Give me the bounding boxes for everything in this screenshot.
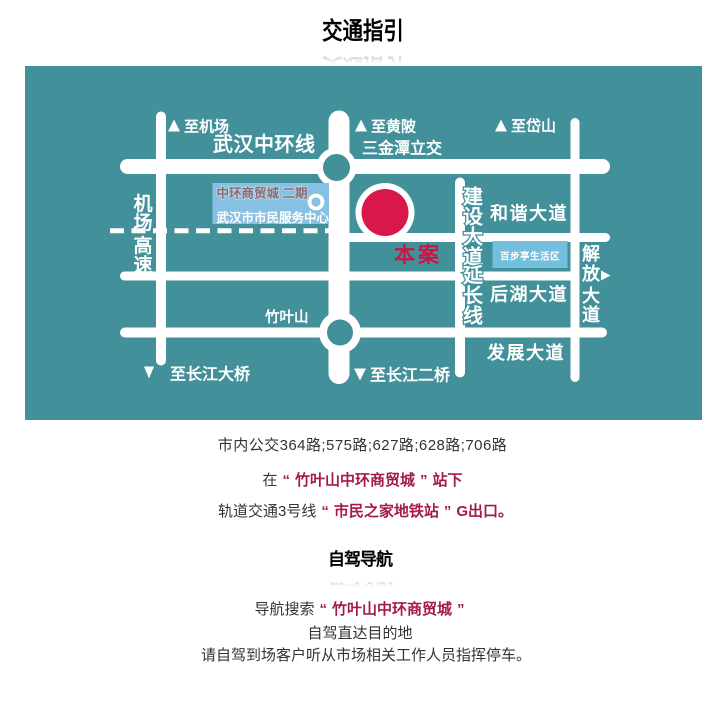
svg-text:武汉市市民服务中心: 武汉市市民服务中心 bbox=[217, 210, 330, 225]
svg-text:至岱山: 至岱山 bbox=[511, 117, 556, 135]
svg-text:竹叶山: 竹叶山 bbox=[264, 308, 309, 326]
svg-text:武汉中环线: 武汉中环线 bbox=[213, 132, 316, 156]
svg-text:速: 速 bbox=[133, 254, 152, 277]
svg-text:设: 设 bbox=[463, 206, 483, 229]
svg-text:和谐大道: 和谐大道 bbox=[490, 203, 568, 224]
svg-text:场: 场 bbox=[133, 212, 152, 234]
svg-text:延: 延 bbox=[462, 263, 484, 287]
svg-text:三金潭立交: 三金潭立交 bbox=[362, 139, 442, 158]
svg-text:中环商贸城 二期: 中环商贸城 二期 bbox=[217, 186, 308, 201]
svg-text:至长江二桥: 至长江二桥 bbox=[370, 366, 451, 385]
svg-text:百步亭生活区: 百步亭生活区 bbox=[500, 251, 560, 263]
svg-text:本案: 本案 bbox=[394, 243, 442, 267]
svg-text:建: 建 bbox=[463, 185, 483, 209]
svg-text:高: 高 bbox=[133, 234, 152, 257]
svg-text:至长江大桥: 至长江大桥 bbox=[170, 365, 251, 384]
svg-text:机: 机 bbox=[133, 193, 152, 215]
svg-text:大: 大 bbox=[463, 226, 483, 249]
svg-text:大: 大 bbox=[582, 285, 600, 306]
svg-text:发展大道: 发展大道 bbox=[486, 342, 565, 363]
svg-text:至黄陂: 至黄陂 bbox=[371, 118, 417, 136]
svg-text:长: 长 bbox=[463, 285, 484, 308]
svg-text:解: 解 bbox=[582, 243, 600, 264]
svg-text:放: 放 bbox=[581, 263, 601, 284]
svg-text:线: 线 bbox=[463, 304, 483, 328]
svg-text:至机场: 至机场 bbox=[184, 118, 229, 136]
svg-text:后湖大道: 后湖大道 bbox=[490, 284, 568, 305]
svg-text:道: 道 bbox=[582, 304, 600, 325]
